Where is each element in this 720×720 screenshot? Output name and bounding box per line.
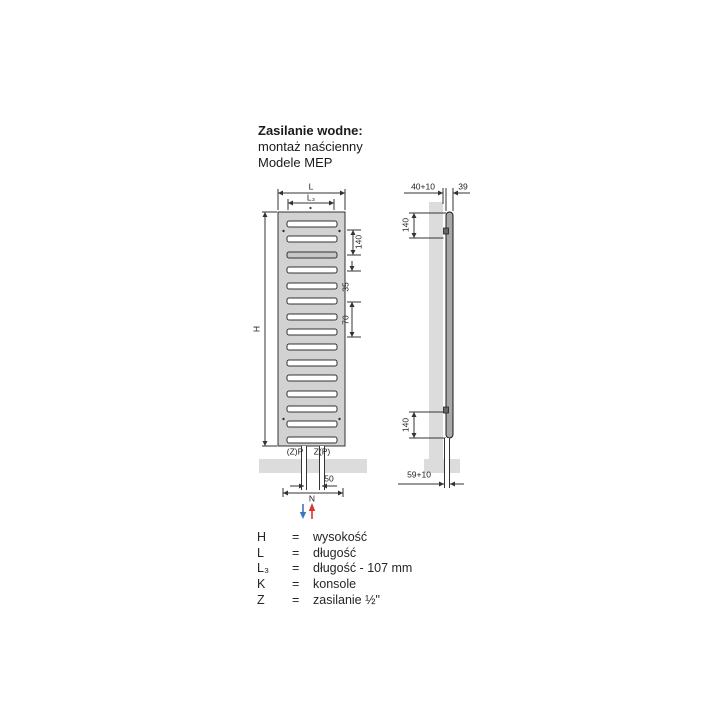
legend-equals: = <box>292 577 313 593</box>
legend-row-l3: L₃ = długość - 107 mm <box>257 561 412 577</box>
title-subline2: Modele MEP <box>258 155 363 171</box>
legend-row-k: K = konsole <box>257 577 412 593</box>
slot <box>287 329 337 335</box>
radiator-panel-side <box>446 212 453 438</box>
side-view <box>398 188 470 488</box>
dim-label-depth: 39 <box>458 183 467 192</box>
dim-label-top-offset: 140 <box>355 235 364 249</box>
slot <box>287 283 337 289</box>
legend-desc: zasilanie ½" <box>313 593 380 609</box>
dim-label-length3: L₃ <box>307 194 315 203</box>
legend-symbol: L₃ <box>257 561 292 577</box>
floor-band-front <box>259 459 367 473</box>
dim-label-bracket-top: 140 <box>402 218 411 232</box>
legend-row-l: L = długość <box>257 546 412 562</box>
slot <box>287 298 337 304</box>
title-subline1: montaż naścienny <box>258 139 363 155</box>
legend-equals: = <box>292 593 313 609</box>
slot <box>287 344 337 350</box>
dim-label-console-spacing: N <box>309 495 315 504</box>
dim-label-slot-pitch: 35 <box>342 282 351 291</box>
pipe-label-left: (Z)P <box>287 448 304 457</box>
dim-label-pipe-spacing: 50 <box>324 475 333 484</box>
dim-H-lines <box>262 212 277 446</box>
page: Zasilanie wodne: montaż naścienny Modele… <box>0 0 720 720</box>
dim-label-bracket-bottom: 140 <box>402 418 411 432</box>
dim-label-height: H <box>253 326 262 332</box>
dim-label-length: L <box>309 183 314 192</box>
radiator-slots <box>287 221 337 443</box>
legend-row-h: H = wysokość <box>257 530 412 546</box>
legend-row-z: Z = zasilanie ½" <box>257 593 412 609</box>
slot <box>287 236 337 242</box>
pipe-label-right: Z(P) <box>314 448 331 457</box>
title-block: Zasilanie wodne: montaż naścienny Modele… <box>258 123 363 171</box>
flow-return-arrow-icon <box>300 504 306 519</box>
slot <box>287 391 337 397</box>
slot <box>287 221 337 227</box>
dim-label-wall-distance: 40+10 <box>411 183 435 192</box>
flow-supply-arrow-icon <box>309 503 315 519</box>
legend-desc: wysokość <box>313 530 367 546</box>
technical-drawing <box>0 0 720 720</box>
legend: H = wysokość L = długość L₃ = długość - … <box>257 530 412 609</box>
legend-symbol: L <box>257 546 292 562</box>
slot <box>287 360 337 366</box>
legend-equals: = <box>292 530 313 546</box>
slot <box>287 437 337 443</box>
slot <box>287 406 337 412</box>
pipe-side <box>445 438 450 488</box>
legend-equals: = <box>292 546 313 562</box>
legend-desc: długość <box>313 546 356 562</box>
slot <box>287 314 337 320</box>
slot <box>287 267 337 273</box>
legend-symbol: H <box>257 530 292 546</box>
slot <box>287 252 337 258</box>
legend-desc: długość - 107 mm <box>313 561 412 577</box>
legend-symbol: K <box>257 577 292 593</box>
title-heading: Zasilanie wodne: <box>258 123 363 139</box>
wall <box>429 202 443 470</box>
slot <box>287 421 337 427</box>
slot <box>287 375 337 381</box>
legend-desc: konsole <box>313 577 356 593</box>
legend-equals: = <box>292 561 313 577</box>
dim-label-slot-pitch2: 70 <box>342 315 351 324</box>
dim-label-pipe-wall: 59+10 <box>407 471 431 480</box>
legend-symbol: Z <box>257 593 292 609</box>
